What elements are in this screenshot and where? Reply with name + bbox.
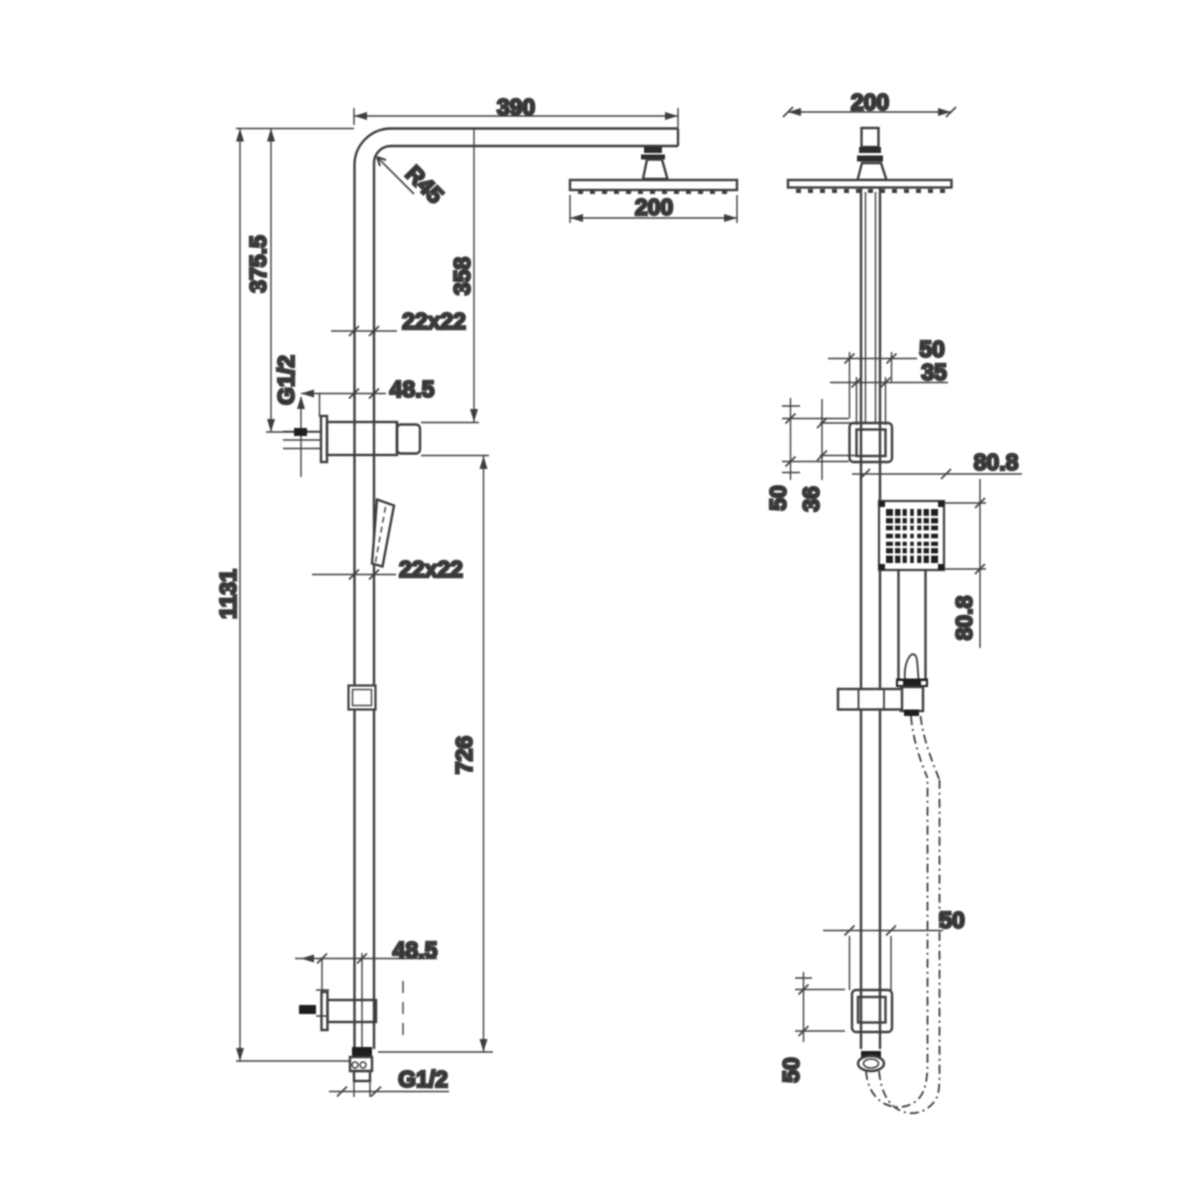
svg-text:726: 726 (451, 736, 477, 774)
svg-text:358: 358 (449, 257, 475, 296)
svg-text:22x22: 22x22 (402, 308, 466, 334)
svg-text:80.8: 80.8 (951, 595, 977, 640)
svg-text:G1/2: G1/2 (398, 1066, 448, 1092)
svg-text:50: 50 (939, 907, 965, 933)
svg-text:35: 35 (921, 359, 947, 385)
svg-text:390: 390 (497, 94, 535, 120)
svg-text:1131: 1131 (215, 569, 241, 619)
svg-text:48.5: 48.5 (393, 937, 438, 963)
svg-text:R45: R45 (401, 160, 449, 208)
svg-text:36: 36 (798, 486, 824, 512)
svg-text:200: 200 (635, 194, 673, 220)
svg-text:80.8: 80.8 (974, 449, 1019, 475)
svg-text:50: 50 (778, 1057, 804, 1083)
svg-text:375.5: 375.5 (245, 235, 271, 293)
svg-text:G1/2: G1/2 (273, 355, 299, 405)
svg-text:200: 200 (851, 89, 889, 115)
svg-text:48.5: 48.5 (390, 376, 435, 402)
svg-text:22x22: 22x22 (399, 556, 463, 582)
svg-text:50: 50 (765, 485, 791, 511)
